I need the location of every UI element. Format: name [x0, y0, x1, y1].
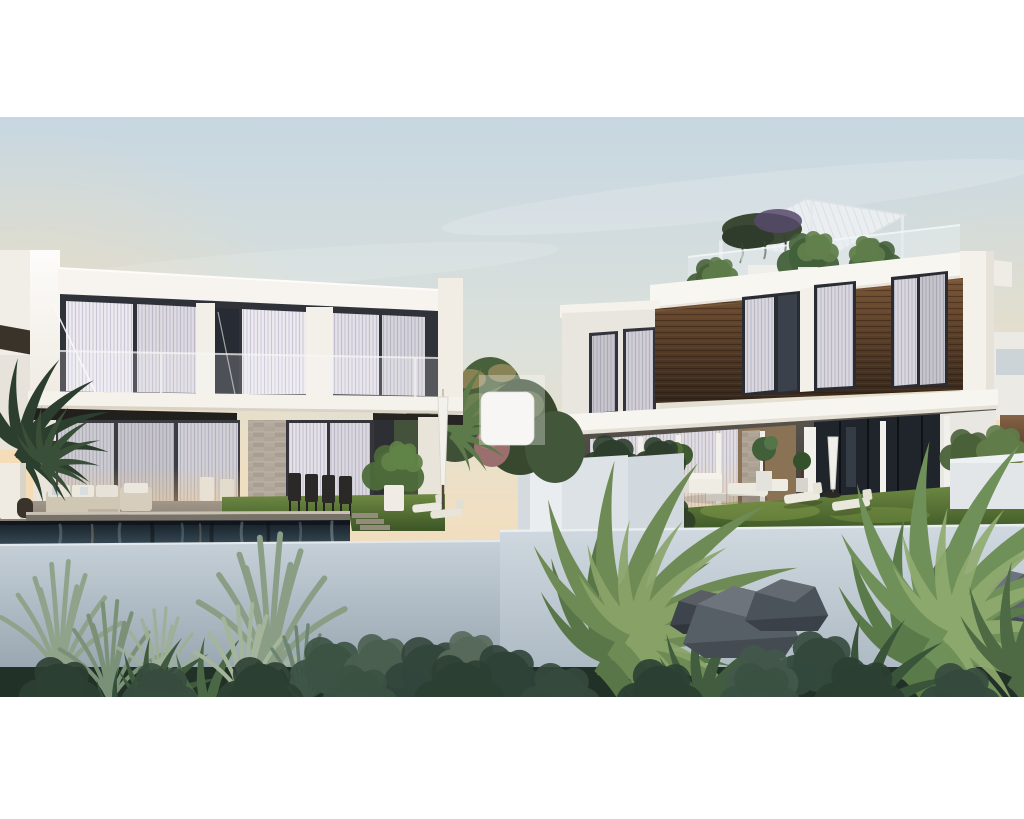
- upper-window-curtain: [894, 278, 917, 386]
- pergola-wisteria: [754, 209, 802, 233]
- coping-dark: [26, 514, 350, 521]
- upper-window-glass: [778, 294, 797, 392]
- waterline-tile: [0, 521, 350, 525]
- watermark: [479, 375, 545, 445]
- wing-window-curtain: [592, 334, 615, 413]
- villa-render-photo: [0, 117, 1024, 697]
- white-planter: [384, 485, 404, 511]
- armchair-cushion: [124, 483, 148, 493]
- neighbour-glass-right: [996, 349, 1024, 375]
- upper-window-curtain: [745, 297, 774, 393]
- window-mullion: [800, 287, 814, 392]
- right-pillar: [438, 278, 463, 417]
- striped-pillow: [80, 487, 88, 495]
- pillar-shade: [986, 251, 994, 413]
- wing-window-curtain: [626, 330, 653, 414]
- left-wing: [560, 300, 660, 429]
- watermark-tile: [481, 392, 534, 445]
- upper-window-curtain: [817, 284, 853, 388]
- upper-window-curtain: [920, 274, 945, 385]
- glass-reflection: [846, 427, 856, 487]
- balcony-glass-balustrade: [60, 350, 438, 398]
- render-canvas: [0, 117, 1024, 697]
